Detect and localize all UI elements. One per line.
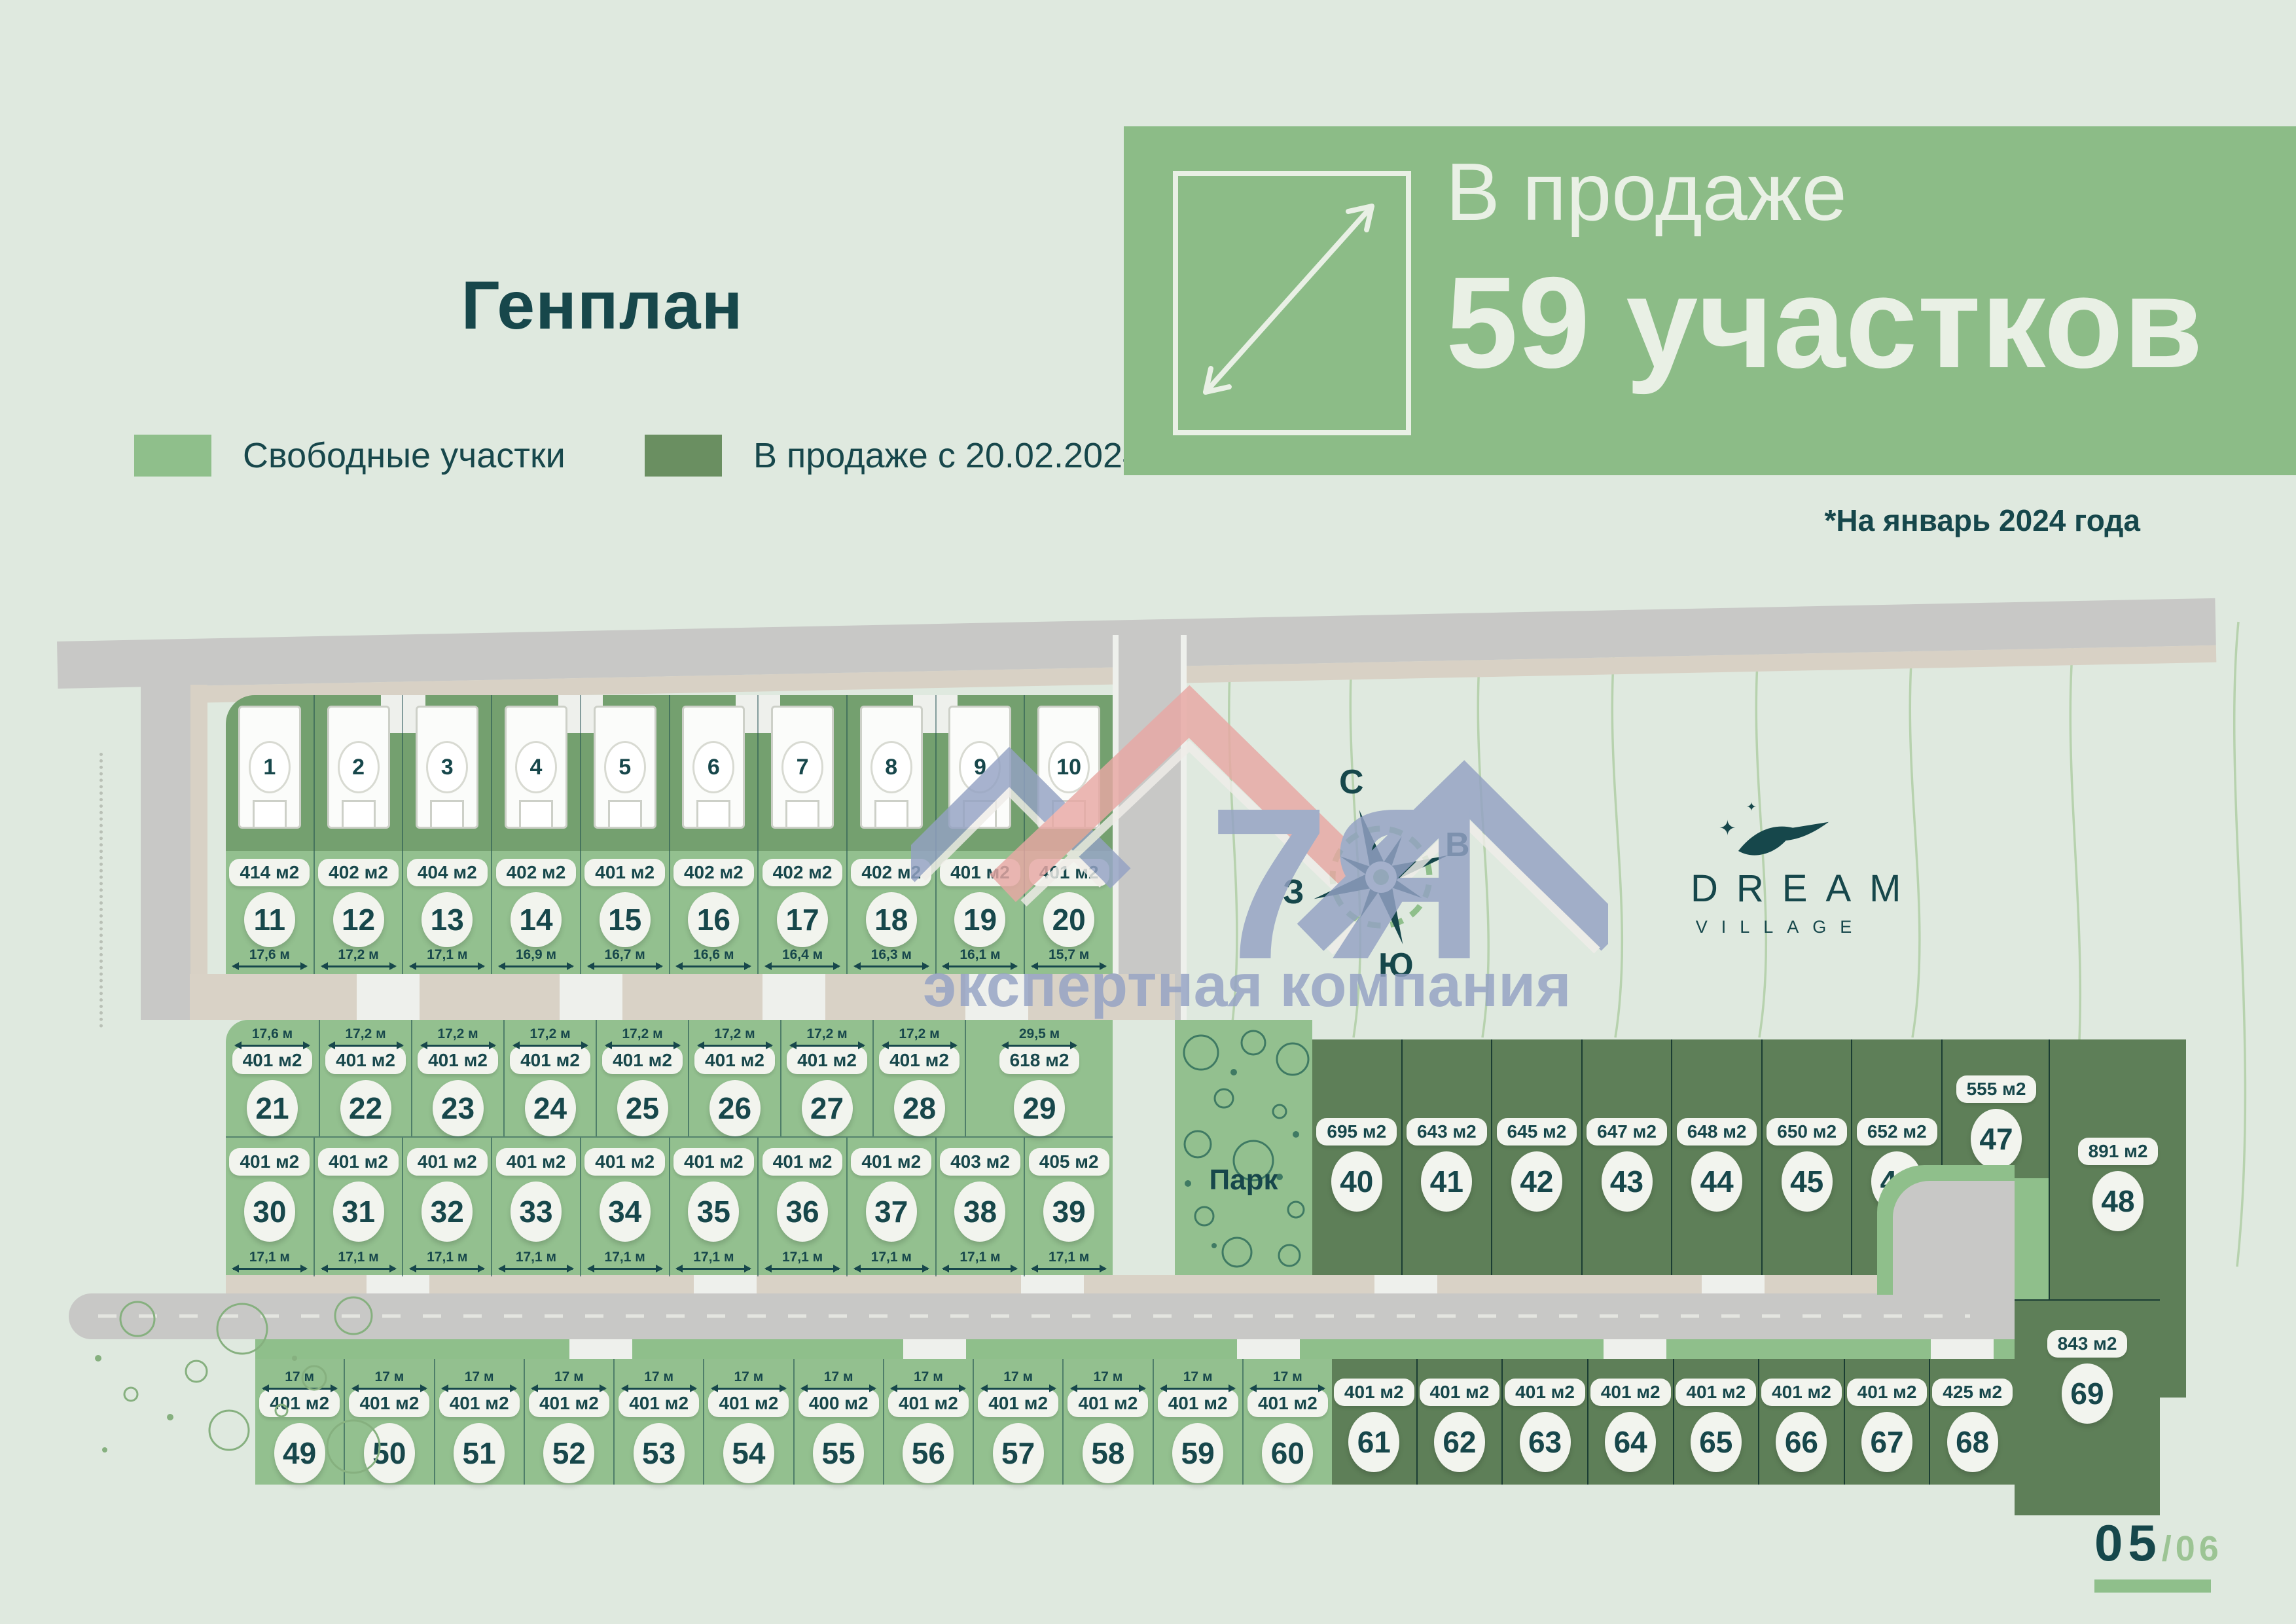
driveway-crossing <box>1604 1339 1666 1359</box>
page-indicator: 05 /06 <box>2094 1513 2251 1593</box>
width-arrow-icon <box>1161 1388 1234 1390</box>
brand-logo: ✦ ✦ DREAM VILLAGE <box>1672 806 1875 937</box>
plot-area-badge: 647 м2 <box>1587 1118 1667 1146</box>
plot-number: 12 <box>333 892 384 947</box>
plot-50: 17 м401 м250 <box>344 1359 433 1485</box>
house-number: 3 <box>426 741 468 793</box>
left-sidewalk <box>190 685 207 1020</box>
plot-width-label: 17,2 м <box>883 1026 956 1047</box>
width-arrow-icon <box>1251 1388 1324 1390</box>
plot-number: 66 <box>1776 1412 1827 1472</box>
plot-39: 405 м23917,1 м <box>1024 1138 1113 1276</box>
plot-66: 401 м266 <box>1758 1359 1844 1485</box>
plot-65: 401 м265 <box>1673 1359 1759 1485</box>
plot-area-badge: 401 м2 <box>708 1390 789 1417</box>
width-arrow-icon <box>698 1045 772 1047</box>
plot-area-badge: 401 м2 <box>1420 1379 1500 1406</box>
plot-number: 39 <box>1043 1182 1094 1242</box>
plot-number: 36 <box>777 1182 828 1242</box>
plot-area-badge: 401 м2 <box>1505 1379 1585 1406</box>
plot-37: 401 м23717,1 м <box>846 1138 935 1276</box>
plot-number: 13 <box>422 892 473 947</box>
driveway-crossing <box>569 1339 632 1359</box>
plot-number: 45 <box>1782 1151 1833 1212</box>
plot-number: 22 <box>340 1080 391 1136</box>
plot-width-label: 17,1 м <box>588 1250 662 1270</box>
plot-width-label: 17,1 м <box>322 1250 395 1270</box>
plot-area-badge: 648 м2 <box>1677 1118 1757 1146</box>
house-number: 6 <box>692 741 734 793</box>
area-diagonal-icon <box>1173 171 1411 435</box>
legend-item-sale: В продаже с 20.02.2024 <box>645 435 1142 477</box>
plot-width-label: 17,6 м <box>233 947 306 967</box>
legend-swatch-free <box>134 435 211 477</box>
plot-57: 17 м401 м257 <box>973 1359 1062 1485</box>
boundary-dashed-line <box>99 753 103 1028</box>
width-arrow-icon <box>883 1045 956 1047</box>
width-arrow-icon <box>233 1268 306 1270</box>
plot-area-badge: 401 м2 <box>673 1148 754 1176</box>
brand-subtitle: VILLAGE <box>1672 917 1875 937</box>
plot-width-label: 17,1 м <box>1032 1250 1105 1270</box>
plot-24: 17,2 м401 м224 <box>503 1020 596 1136</box>
driveway-crossing <box>367 1275 429 1293</box>
plot-area-badge: 401 м2 <box>1676 1379 1756 1406</box>
plot-23: 17,2 м401 м223 <box>411 1020 503 1136</box>
plot-width-label: 17 м <box>802 1369 875 1390</box>
plot-width-label: 17 м <box>982 1369 1055 1390</box>
plot-number: 59 <box>1172 1423 1223 1483</box>
page-total: /06 <box>2162 1528 2223 1569</box>
plot-40: 695 м240 <box>1312 1039 1401 1275</box>
house-garage <box>785 800 819 829</box>
plot-number: 68 <box>1947 1412 1998 1472</box>
plot-area-badge: 414 м2 <box>229 859 310 886</box>
house-lot-6: 6 <box>669 695 758 851</box>
width-arrow-icon <box>329 1045 403 1047</box>
sidewalk-strip <box>226 1275 2015 1293</box>
plot-25: 17,2 м401 м225 <box>596 1020 688 1136</box>
plot-area-badge: 401 м2 <box>888 1390 969 1417</box>
plot-width-label: 17,2 м <box>514 1026 587 1047</box>
plot-area-badge: 402 м2 <box>673 859 754 886</box>
plot-number: 60 <box>1262 1423 1313 1483</box>
width-arrow-icon <box>236 1045 309 1047</box>
plot-number: 64 <box>1605 1412 1656 1472</box>
plot-width-label: 17 м <box>532 1369 605 1390</box>
plot-number: 57 <box>993 1423 1044 1483</box>
plot-58: 17 м401 м258 <box>1062 1359 1152 1485</box>
plot-26: 17,2 м401 м226 <box>688 1020 780 1136</box>
plot-number: 44 <box>1691 1151 1742 1212</box>
plot-area-badge: 401 м2 <box>762 1148 843 1176</box>
plot-width-label: 17,1 м <box>677 1250 750 1270</box>
plot-64: 401 м264 <box>1587 1359 1673 1485</box>
width-arrow-icon <box>499 965 573 967</box>
width-arrow-icon <box>499 1268 573 1270</box>
verge-strip <box>255 1339 2015 1359</box>
plot-number: 49 <box>274 1423 325 1483</box>
plot-22: 17,2 м401 м222 <box>319 1020 411 1136</box>
width-arrow-icon <box>353 1388 426 1390</box>
plot-number: 26 <box>709 1080 761 1136</box>
road-center-dashes <box>98 1314 1970 1318</box>
plot-area-badge: 555 м2 <box>1956 1075 2037 1103</box>
plot-area-badge: 401 м2 <box>229 1148 310 1176</box>
plot-33: 401 м23317,1 м <box>491 1138 580 1276</box>
park-area: Парк <box>1175 1020 1312 1275</box>
house-number: 1 <box>249 741 291 793</box>
plot-area-badge: 891 м2 <box>2078 1138 2159 1165</box>
legend-swatch-sale <box>645 435 722 477</box>
park-label: Парк <box>1175 1164 1312 1197</box>
sale-banner: В продаже 59 участков <box>1124 126 2296 475</box>
house-footprint: 1 <box>238 706 301 829</box>
plot-56: 17 м401 м256 <box>883 1359 973 1485</box>
watermark-small-text: экспертная компания <box>923 951 1571 1019</box>
culdesac-verge <box>2015 1178 2049 1299</box>
width-arrow-icon <box>791 1045 864 1047</box>
plots-row-49-60: 17 м401 м24917 м401 м25017 м401 м25117 м… <box>255 1359 1332 1485</box>
plot-30: 401 м23017,1 м <box>226 1138 314 1276</box>
plot-number: 35 <box>688 1182 739 1242</box>
plot-17: 402 м21716,4 м <box>757 851 846 974</box>
bird-icon <box>1734 821 1833 861</box>
plot-area-badge: 402 м2 <box>318 859 399 886</box>
house-number: 8 <box>870 741 912 793</box>
plot-area-badge: 401 м2 <box>318 1148 399 1176</box>
house-number: 4 <box>515 741 557 793</box>
plot-width-label: 17,1 м <box>499 1250 573 1270</box>
plot-area-badge: 402 м2 <box>762 859 843 886</box>
banner-line1: В продаже <box>1446 146 2203 239</box>
plot-area-badge: 404 м2 <box>407 859 488 886</box>
plot-number: 55 <box>813 1423 864 1483</box>
plot-number: 28 <box>894 1080 945 1136</box>
plot-area-badge: 401 м2 <box>439 1390 520 1417</box>
plot-number: 23 <box>433 1080 484 1136</box>
plot-area-badge: 401 м2 <box>602 1047 683 1074</box>
width-arrow-icon <box>1071 1388 1145 1390</box>
plot-35: 401 м23517,1 м <box>669 1138 758 1276</box>
driveway-crossing <box>694 1275 757 1293</box>
width-arrow-icon <box>766 1268 839 1270</box>
star-icon: ✦ <box>1746 800 1757 815</box>
plot-width-label: 16,4 м <box>766 947 839 967</box>
plot-55: 17 м400 м255 <box>793 1359 883 1485</box>
width-arrow-icon <box>233 965 306 967</box>
plot-area-badge: 402 м2 <box>496 859 577 886</box>
plot-width-label: 17,1 м <box>233 1250 306 1270</box>
plot-area-badge: 401 м2 <box>259 1390 340 1417</box>
plot-width-label: 17,1 м <box>766 1250 839 1270</box>
plot-number: 31 <box>333 1182 384 1242</box>
house-garage <box>342 800 376 829</box>
driveway-crossing <box>357 974 420 1020</box>
plot-area-badge: 652 м2 <box>1857 1118 1937 1146</box>
plot-number: 24 <box>525 1080 576 1136</box>
width-arrow-icon <box>982 1388 1055 1390</box>
driveway-crossing <box>1021 1275 1084 1293</box>
plot-number: 41 <box>1421 1151 1472 1212</box>
plot-width-label: 17 м <box>263 1369 336 1390</box>
house-lot-3: 3 <box>402 695 491 851</box>
park-trees <box>1175 1020 1312 1275</box>
plot-number: 51 <box>454 1423 505 1483</box>
plot-width-label: 17,2 м <box>422 1026 495 1047</box>
plot-14: 402 м21416,9 м <box>491 851 580 974</box>
plot-area-badge: 401 м2 <box>1067 1390 1148 1417</box>
plot-number: 61 <box>1348 1412 1399 1472</box>
plot-width-label: 29,5 м <box>1003 1026 1076 1047</box>
legend-label-sale: В продаже с 20.02.2024 <box>753 435 1142 476</box>
plot-number: 58 <box>1083 1423 1134 1483</box>
driveway-crossing <box>1374 1275 1437 1293</box>
plot-68: 425 м268 <box>1929 1359 2015 1485</box>
plot-number: 53 <box>634 1423 685 1483</box>
plot-width-label: 17 м <box>1161 1369 1234 1390</box>
plot-31: 401 м23117,1 м <box>314 1138 403 1276</box>
plot-area-badge: 401 м2 <box>1334 1379 1414 1406</box>
plot-27: 17,2 м401 м227 <box>780 1020 872 1136</box>
width-arrow-icon <box>322 965 395 967</box>
house-footprint: 7 <box>771 706 834 829</box>
house-garage <box>253 800 287 829</box>
star-icon: ✦ <box>1719 816 1736 840</box>
plot-number: 30 <box>244 1182 295 1242</box>
plot-54: 17 м401 м254 <box>703 1359 793 1485</box>
plot-area-badge: 401 м2 <box>1761 1379 1842 1406</box>
page-indicator-bar <box>2094 1579 2211 1593</box>
plot-width-label: 17,1 м <box>943 1250 1016 1270</box>
plot-number: 34 <box>600 1182 651 1242</box>
house-garage <box>519 800 553 829</box>
width-arrow-icon <box>855 1268 928 1270</box>
plot-area-badge: 695 м2 <box>1316 1118 1397 1146</box>
width-arrow-icon <box>410 1268 484 1270</box>
plot-42: 645 м242 <box>1491 1039 1581 1275</box>
house-lot-4: 4 <box>491 695 580 851</box>
plot-area-badge: 643 м2 <box>1407 1118 1487 1146</box>
house-footprint: 5 <box>594 706 656 829</box>
plot-number: 63 <box>1520 1412 1571 1472</box>
brand-name: DREAM <box>1672 867 1875 911</box>
width-arrow-icon <box>588 1268 662 1270</box>
plot-area-badge: 401 м2 <box>418 1047 498 1074</box>
plot-area-badge: 401 м2 <box>619 1390 699 1417</box>
plot-number: 52 <box>543 1423 594 1483</box>
plot-area-badge: 405 м2 <box>1029 1148 1109 1176</box>
plot-number: 14 <box>511 892 562 947</box>
plots-row-40-46: 695 м240643 м241645 м242647 м243648 м244… <box>1312 1039 1941 1275</box>
plot-49: 17 м401 м249 <box>255 1359 344 1485</box>
plot-area-badge: 401 м2 <box>978 1390 1058 1417</box>
legend-item-free: Свободные участки <box>134 435 565 477</box>
plot-area-badge: 401 м2 <box>879 1047 960 1074</box>
plots-row-21-29: 17,6 м401 м22117,2 м401 м22217,2 м401 м2… <box>226 1020 1113 1136</box>
plot-number: 38 <box>954 1182 1005 1242</box>
plot-21: 17,6 м401 м221 <box>226 1020 319 1136</box>
house-lot-5: 5 <box>580 695 669 851</box>
plot-number: 69 <box>2062 1363 2113 1424</box>
plot-width-label: 17 м <box>712 1369 785 1390</box>
plot-59: 17 м401 м259 <box>1153 1359 1242 1485</box>
width-arrow-icon <box>588 965 662 967</box>
culdesac-road <box>1893 1181 2015 1295</box>
plot-number: 33 <box>511 1182 562 1242</box>
plot-area-badge: 401 м2 <box>349 1390 429 1417</box>
plot-number: 40 <box>1331 1151 1382 1212</box>
plot-width-label: 17,2 м <box>698 1026 772 1047</box>
width-arrow-icon <box>322 1268 395 1270</box>
watermark: 7Я экспертная компания <box>911 662 1608 1022</box>
width-arrow-icon <box>943 1268 1016 1270</box>
house-footprint: 4 <box>505 706 567 829</box>
width-arrow-icon <box>677 1268 750 1270</box>
width-arrow-icon <box>514 1045 587 1047</box>
plot-area-badge: 618 м2 <box>999 1047 1080 1074</box>
banner-line2: 59 участков <box>1446 248 2203 397</box>
driveway-crossing <box>1237 1339 1300 1359</box>
plot-area-badge: 645 м2 <box>1497 1118 1577 1146</box>
plot-area-badge: 401 м2 <box>1847 1379 1928 1406</box>
plot-45: 650 м245 <box>1761 1039 1852 1275</box>
plot-area-badge: 403 м2 <box>940 1148 1020 1176</box>
genplan-poster: Генплан Свободные участки В продаже с 20… <box>0 0 2296 1624</box>
plot-number: 65 <box>1691 1412 1742 1472</box>
width-arrow-icon <box>622 1388 696 1390</box>
plot-width-label: 17 м <box>891 1369 965 1390</box>
plot-area-badge: 400 м2 <box>798 1390 879 1417</box>
plot-area-badge: 401 м2 <box>510 1047 590 1074</box>
width-arrow-icon <box>422 1045 495 1047</box>
plot-width-label: 16,6 м <box>677 947 750 967</box>
plot-width-label: 17,2 м <box>322 947 395 967</box>
plot-area-badge: 401 м2 <box>1590 1379 1671 1406</box>
width-arrow-icon <box>532 1388 605 1390</box>
plots-row-30-39: 401 м23017,1 м401 м23117,1 м401 м23217,1… <box>226 1136 1113 1276</box>
house-footprint: 6 <box>682 706 745 829</box>
plot-width-label: 17,2 м <box>791 1026 864 1047</box>
plot-number: 50 <box>364 1423 415 1483</box>
house-number: 7 <box>781 741 823 793</box>
plot-32: 401 м23217,1 м <box>402 1138 491 1276</box>
plot-63: 401 м263 <box>1501 1359 1587 1485</box>
house-lot-1: 1 <box>226 695 314 851</box>
plot-width-label: 17 м <box>353 1369 426 1390</box>
plot-13: 404 м21317,1 м <box>402 851 491 974</box>
width-arrow-icon <box>802 1388 875 1390</box>
page-current: 05 <box>2094 1513 2162 1573</box>
house-garage <box>430 800 464 829</box>
plot-area-badge: 401 м2 <box>1247 1390 1328 1417</box>
plot-number: 67 <box>1861 1412 1912 1472</box>
plot-12: 402 м21217,2 м <box>314 851 403 974</box>
plot-number: 54 <box>723 1423 774 1483</box>
house-garage <box>874 800 908 829</box>
plot-number: 25 <box>617 1080 668 1136</box>
plot-60: 17 м401 м260 <box>1242 1359 1332 1485</box>
plot-36: 401 м23617,1 м <box>757 1138 846 1276</box>
plot-number: 42 <box>1511 1151 1562 1212</box>
plot-11: 414 м21117,6 м <box>226 851 314 974</box>
plot-69: 843 м269 <box>2015 1299 2160 1515</box>
width-arrow-icon <box>410 965 484 967</box>
plot-width-label: 17,6 м <box>236 1026 309 1047</box>
driveway-crossing <box>1931 1339 1994 1359</box>
plot-number: 47 <box>1971 1109 2022 1169</box>
plot-67: 401 м267 <box>1844 1359 1929 1485</box>
plot-width-label: 17 м <box>622 1369 696 1390</box>
plot-area-badge: 401 м2 <box>232 1047 313 1074</box>
plot-number: 37 <box>866 1182 917 1242</box>
plot-width-label: 17,2 м <box>329 1026 403 1047</box>
legend-label-free: Свободные участки <box>243 435 565 476</box>
plot-width-label: 17,2 м <box>606 1026 679 1047</box>
plot-number: 16 <box>688 892 739 947</box>
plot-44: 648 м244 <box>1671 1039 1761 1275</box>
plot-53: 17 м401 м253 <box>613 1359 703 1485</box>
plot-width-label: 16,7 м <box>588 947 662 967</box>
width-arrow-icon <box>606 1045 679 1047</box>
plot-width-label: 17 м <box>442 1369 516 1390</box>
plot-area-badge: 650 м2 <box>1767 1118 1847 1146</box>
house-garage <box>608 800 642 829</box>
plot-number: 62 <box>1434 1412 1485 1472</box>
plot-41: 643 м241 <box>1401 1039 1492 1275</box>
plot-number: 29 <box>1014 1080 1065 1136</box>
plot-area-badge: 401 м2 <box>694 1047 775 1074</box>
width-arrow-icon <box>263 1388 336 1390</box>
width-arrow-icon <box>442 1388 516 1390</box>
plot-width-label: 17,1 м <box>410 947 484 967</box>
plot-area-badge: 401 м2 <box>325 1047 406 1074</box>
plot-area-badge: 401 м2 <box>1158 1390 1238 1417</box>
plot-area-badge: 401 м2 <box>496 1148 577 1176</box>
plot-number: 32 <box>422 1182 473 1242</box>
driveway-crossing <box>903 1339 966 1359</box>
plot-area-badge: 425 м2 <box>1932 1379 2013 1406</box>
plot-number: 27 <box>802 1080 853 1136</box>
house-number: 5 <box>604 741 646 793</box>
plot-width-label: 17 м <box>1251 1369 1324 1390</box>
width-arrow-icon <box>1003 1045 1076 1047</box>
house-number: 2 <box>338 741 380 793</box>
plot-51: 17 м401 м251 <box>434 1359 524 1485</box>
house-garage <box>696 800 730 829</box>
plot-area-badge: 401 м2 <box>584 859 665 886</box>
plot-34: 401 м23417,1 м <box>580 1138 669 1276</box>
house-footprint: 2 <box>327 706 390 829</box>
plot-number: 56 <box>903 1423 954 1483</box>
plot-28: 17,2 м401 м228 <box>872 1020 965 1136</box>
house-footprint: 3 <box>416 706 478 829</box>
house-lot-7: 7 <box>757 695 846 851</box>
banner-footnote: *На январь 2024 года <box>1806 503 2140 538</box>
plot-width-label: 17 м <box>1071 1369 1145 1390</box>
plot-number: 15 <box>600 892 651 947</box>
plot-61: 401 м261 <box>1332 1359 1416 1485</box>
plot-number: 48 <box>2092 1171 2144 1231</box>
plot-area-badge: 401 м2 <box>529 1390 609 1417</box>
width-arrow-icon <box>766 965 839 967</box>
plot-number: 17 <box>777 892 828 947</box>
plot-width-label: 17,1 м <box>855 1250 928 1270</box>
plot-62: 401 м262 <box>1416 1359 1502 1485</box>
left-road <box>141 685 190 1020</box>
plot-43: 647 м243 <box>1581 1039 1672 1275</box>
page-title: Генплан <box>406 267 798 345</box>
